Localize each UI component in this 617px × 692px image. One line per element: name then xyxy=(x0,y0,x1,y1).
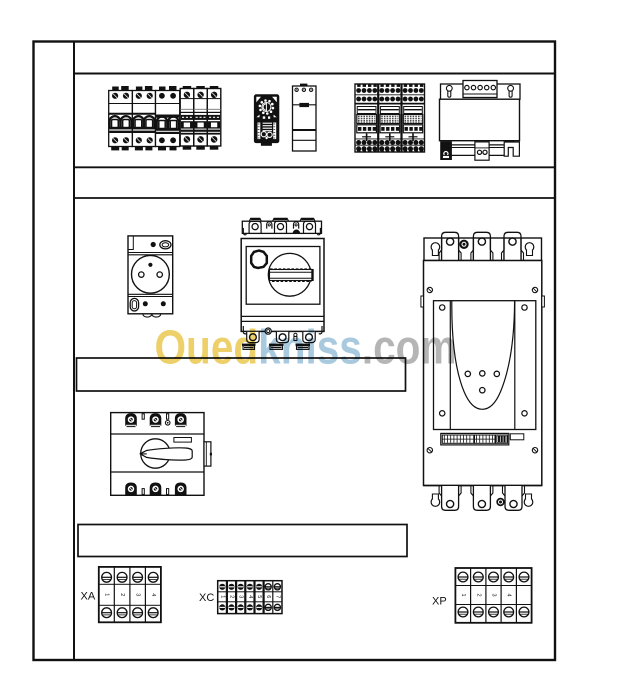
svg-text:2: 2 xyxy=(119,593,125,596)
svg-text:Ouedkniss.com: Ouedkniss.com xyxy=(155,322,457,375)
svg-text:4: 4 xyxy=(506,593,512,596)
svg-text:XA: XA xyxy=(81,591,96,603)
svg-text:2: 2 xyxy=(229,595,235,598)
svg-text:4: 4 xyxy=(150,593,156,596)
svg-text:3: 3 xyxy=(135,593,141,596)
svg-text:5: 5 xyxy=(256,595,262,598)
svg-text:1: 1 xyxy=(219,595,225,598)
svg-text:4: 4 xyxy=(247,595,253,598)
svg-text:1: 1 xyxy=(104,593,110,596)
svg-text:7: 7 xyxy=(274,595,280,598)
svg-text:6: 6 xyxy=(265,595,271,598)
svg-text:2: 2 xyxy=(475,593,481,596)
svg-text:XP: XP xyxy=(432,596,447,608)
svg-text:3: 3 xyxy=(238,595,244,598)
svg-text:3: 3 xyxy=(491,593,497,596)
svg-text:1: 1 xyxy=(460,593,466,596)
svg-text:XC: XC xyxy=(199,592,214,604)
